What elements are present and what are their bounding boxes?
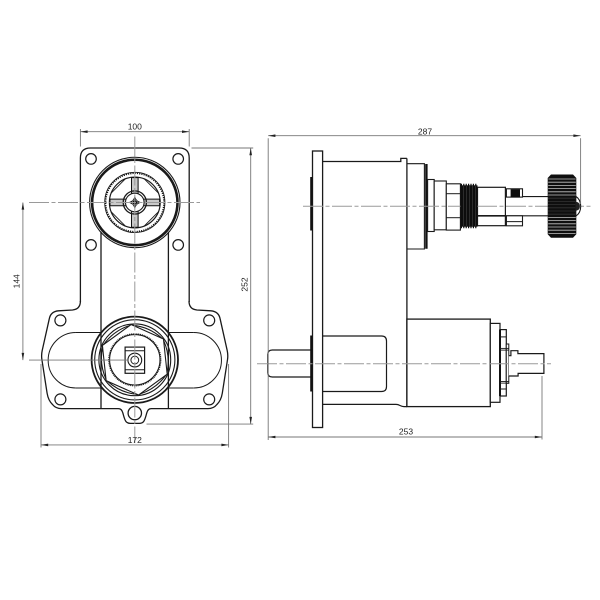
svg-text:172: 172 xyxy=(128,435,142,445)
svg-text:287: 287 xyxy=(418,126,432,136)
svg-text:144: 144 xyxy=(12,274,22,288)
svg-text:252: 252 xyxy=(239,277,249,291)
svg-text:100: 100 xyxy=(128,121,142,131)
svg-text:253: 253 xyxy=(399,427,413,437)
